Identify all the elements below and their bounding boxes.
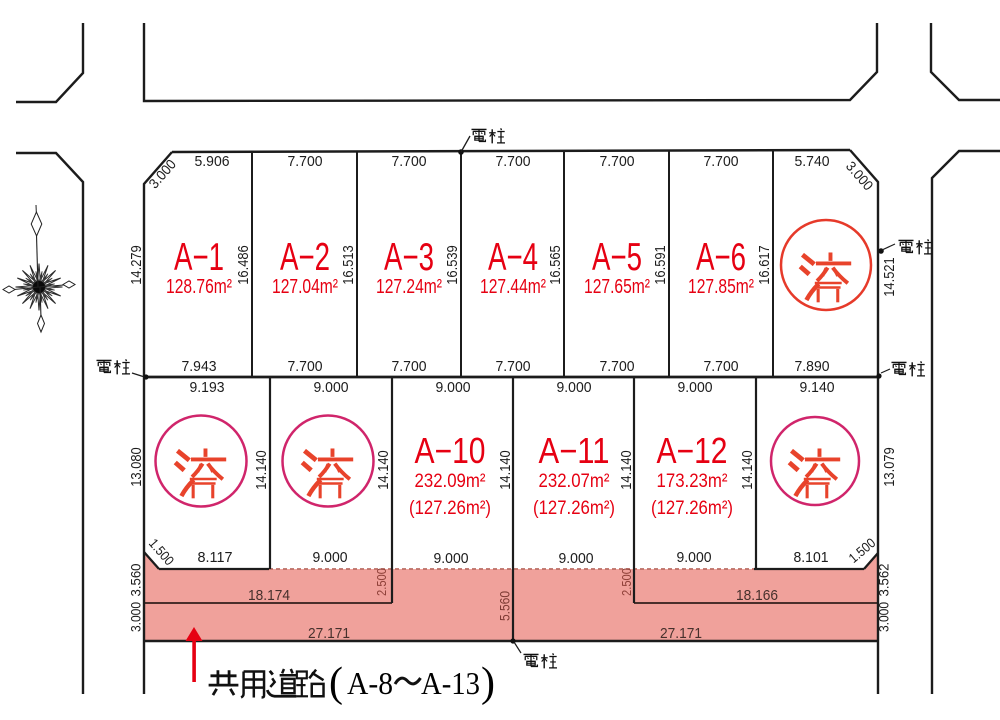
svg-text:A−5: A−5	[592, 236, 642, 279]
svg-text:7.700: 7.700	[600, 153, 635, 170]
svg-text:127.44m²: 127.44m²	[480, 276, 546, 298]
svg-text:9.000: 9.000	[313, 549, 348, 566]
svg-text:16.565: 16.565	[547, 245, 564, 285]
svg-text:9.000: 9.000	[434, 550, 469, 567]
svg-text:9.193: 9.193	[190, 379, 225, 396]
svg-text:9.000: 9.000	[559, 550, 594, 567]
svg-text:14.140: 14.140	[497, 450, 514, 490]
svg-text:13.080: 13.080	[128, 447, 145, 487]
svg-text:7.700: 7.700	[288, 358, 323, 375]
svg-text:A-13: A-13	[421, 665, 480, 701]
svg-text:9.000: 9.000	[314, 379, 349, 396]
svg-text:16.486: 16.486	[235, 245, 252, 285]
svg-text:232.07m²: 232.07m²	[539, 471, 610, 492]
svg-text:9.000: 9.000	[677, 549, 712, 566]
svg-text:A−3: A−3	[384, 236, 434, 279]
svg-text:16.539: 16.539	[444, 245, 461, 285]
svg-text:A−4: A−4	[488, 236, 538, 279]
svg-text:(: (	[329, 660, 343, 706]
svg-text:7.700: 7.700	[600, 358, 635, 375]
svg-text:127.24m²: 127.24m²	[376, 276, 442, 298]
svg-text:18.174: 18.174	[248, 587, 290, 604]
svg-text:7.700: 7.700	[496, 153, 531, 170]
svg-text:14.140: 14.140	[375, 450, 392, 490]
svg-text:9.000: 9.000	[436, 379, 471, 396]
svg-text:3.000: 3.000	[129, 602, 144, 632]
svg-text:7.943: 7.943	[182, 358, 217, 375]
svg-text:A−1: A−1	[174, 236, 224, 279]
svg-text:A−2: A−2	[280, 236, 330, 279]
svg-text:A−10: A−10	[415, 430, 486, 471]
svg-text:5.740: 5.740	[795, 153, 830, 170]
svg-text:A−6: A−6	[696, 236, 746, 279]
svg-text:3.560: 3.560	[129, 564, 144, 597]
svg-text:A-8: A-8	[347, 665, 393, 701]
svg-text:127.04m²: 127.04m²	[272, 276, 338, 298]
svg-text:3.562: 3.562	[877, 564, 892, 597]
svg-text:A−12: A−12	[657, 430, 728, 471]
svg-text:): )	[481, 660, 495, 706]
svg-text:(127.26m²): (127.26m²)	[651, 498, 733, 519]
svg-text:14.521: 14.521	[881, 257, 898, 297]
svg-text:16.591: 16.591	[652, 245, 669, 285]
svg-text:5.560: 5.560	[498, 591, 513, 621]
svg-text:5.906: 5.906	[195, 153, 230, 170]
svg-text:8.117: 8.117	[198, 549, 233, 566]
svg-text:16.513: 16.513	[340, 245, 357, 285]
svg-text:27.171: 27.171	[308, 625, 350, 642]
svg-text:7.700: 7.700	[392, 358, 427, 375]
svg-text:127.85m²: 127.85m²	[688, 276, 754, 298]
svg-text:2.500: 2.500	[374, 568, 389, 596]
svg-text:7.700: 7.700	[288, 153, 323, 170]
svg-text:7.700: 7.700	[704, 358, 739, 375]
svg-text:7.700: 7.700	[392, 153, 427, 170]
svg-text:7.700: 7.700	[704, 153, 739, 170]
svg-text:128.76m²: 128.76m²	[166, 276, 232, 298]
svg-text:18.166: 18.166	[736, 587, 778, 604]
svg-text:173.23m²: 173.23m²	[657, 471, 728, 492]
svg-text:(127.26m²): (127.26m²)	[533, 498, 615, 519]
svg-text:14.279: 14.279	[128, 245, 145, 285]
svg-text:7.700: 7.700	[496, 358, 531, 375]
svg-text:232.09m²: 232.09m²	[415, 471, 486, 492]
svg-text:27.171: 27.171	[660, 625, 702, 642]
svg-text:A−11: A−11	[539, 430, 610, 471]
svg-text:14.140: 14.140	[739, 450, 756, 490]
svg-text:3.000: 3.000	[877, 602, 892, 632]
svg-text:16.617: 16.617	[756, 245, 773, 285]
svg-text:8.101: 8.101	[794, 549, 829, 566]
svg-text:2.500: 2.500	[619, 568, 634, 596]
svg-text:9.140: 9.140	[800, 379, 835, 396]
svg-text:14.140: 14.140	[253, 450, 270, 490]
svg-text:7.890: 7.890	[795, 358, 830, 375]
svg-text:(127.26m²): (127.26m²)	[409, 498, 491, 519]
svg-text:127.65m²: 127.65m²	[584, 276, 650, 298]
svg-text:9.000: 9.000	[678, 379, 713, 396]
svg-text:14.140: 14.140	[618, 450, 635, 490]
svg-text:13.079: 13.079	[881, 447, 898, 487]
svg-text:9.000: 9.000	[557, 379, 592, 396]
